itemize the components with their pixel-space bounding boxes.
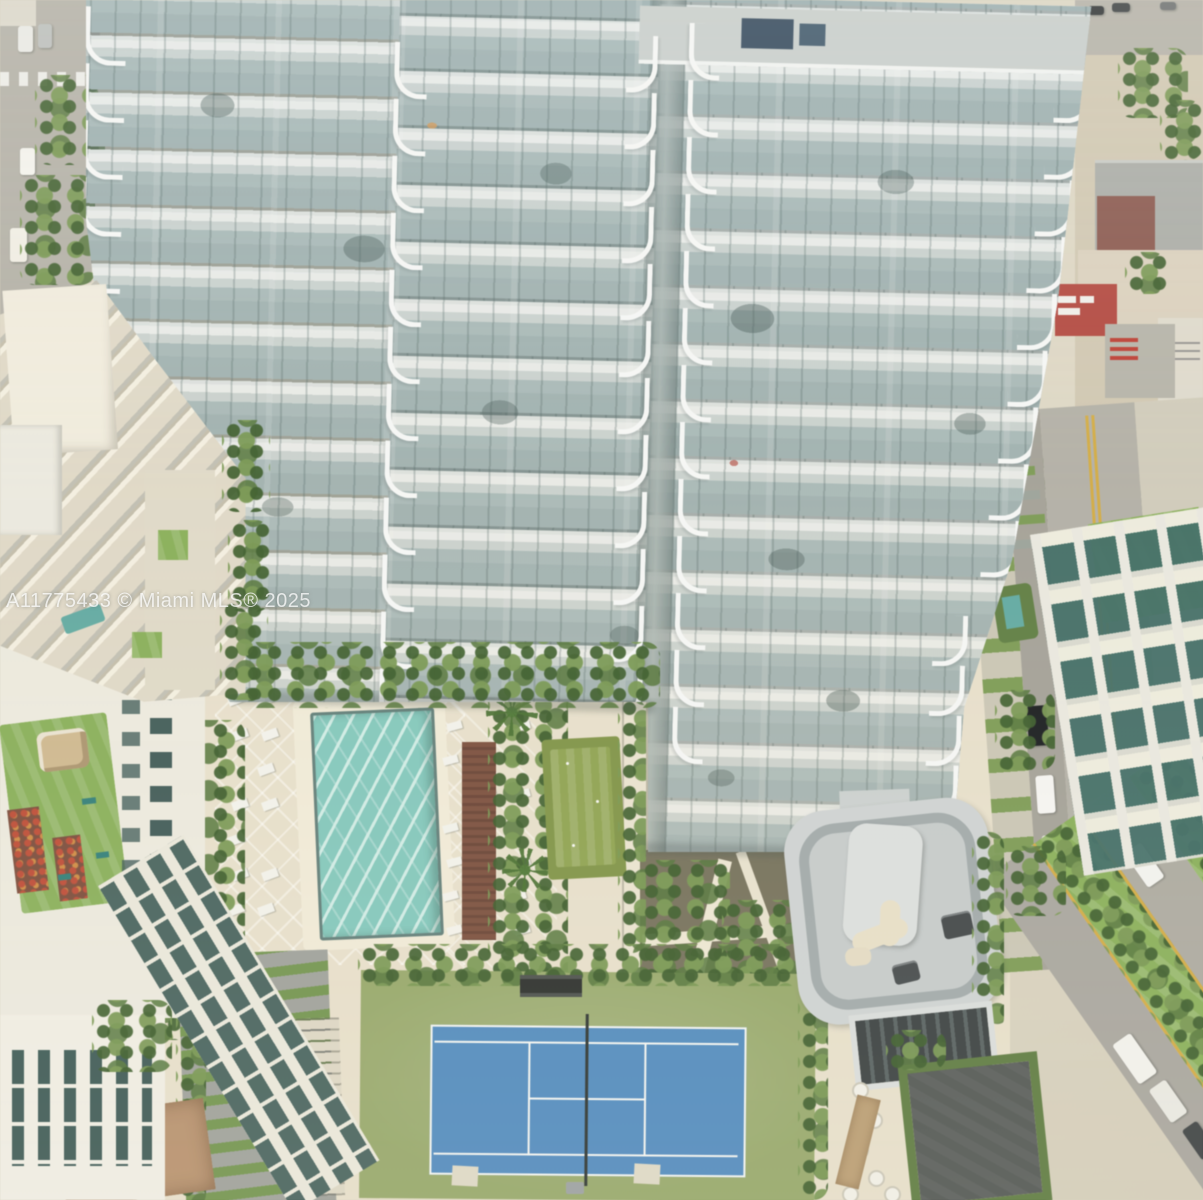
district-trees [1125, 252, 1167, 294]
balcony-edge [82, 120, 124, 180]
lounge-chair [442, 754, 459, 766]
lap-pool [310, 707, 444, 940]
red-house [1097, 196, 1155, 252]
solar-panels [741, 18, 794, 49]
event-lawn [898, 1051, 1053, 1200]
cream-sofa [879, 900, 901, 947]
palm-tree [502, 848, 548, 892]
playground-slide [36, 727, 91, 773]
red-stripe [1110, 347, 1138, 351]
court-bench [520, 975, 582, 997]
car [38, 24, 52, 48]
lounge-chair [261, 798, 279, 812]
lounge-chair [446, 720, 463, 732]
red-stripe [1110, 338, 1138, 342]
solar-panels [799, 24, 826, 47]
net-post-pad [633, 1163, 660, 1184]
gap-trees [222, 420, 270, 512]
red-stripe [1110, 356, 1138, 360]
sign-panel [1058, 308, 1080, 315]
golf-hole [596, 800, 599, 803]
green-roof-patch [132, 632, 162, 658]
lounge-chair [442, 890, 459, 902]
car [1112, 3, 1130, 12]
putting-green-inner [550, 747, 616, 868]
corner-tree [92, 1000, 172, 1072]
corner-building [0, 0, 36, 26]
sign-panel [1058, 296, 1076, 303]
white-slab-roof [0, 425, 62, 535]
lounge-chair [257, 763, 275, 777]
car [1160, 2, 1176, 10]
net-post-pad [451, 1165, 478, 1186]
gap-trees [220, 600, 268, 700]
basketball-hoop [566, 1182, 584, 1194]
green-roof-patch [158, 530, 188, 560]
se-deck-hedge [886, 1030, 946, 1070]
golf-hole [566, 762, 569, 765]
lounge-chair [257, 903, 275, 917]
lounge-chair [442, 822, 459, 834]
car [18, 26, 33, 52]
balcony-edge [83, 63, 125, 123]
aerial-photo: A11775433 © Miami MLS® 2025 [0, 0, 1203, 1200]
umbrella-table [884, 1186, 901, 1200]
tennis-hedge-top [358, 944, 814, 986]
mls-watermark: A11775433 © Miami MLS® 2025 [6, 590, 311, 613]
balcony-edge [84, 6, 126, 66]
pavilion-trees [995, 690, 1055, 770]
tennis-court [429, 1025, 746, 1178]
tower-base-trees [240, 642, 660, 708]
umbrella-table [868, 1170, 885, 1187]
lounge-chair [261, 728, 279, 742]
se-deck-hedge [1006, 846, 1066, 916]
lounge-chair [446, 924, 463, 936]
car [1035, 775, 1056, 814]
golf-hole [572, 844, 575, 847]
street-trees [20, 175, 95, 285]
lounge-chair [446, 856, 463, 868]
district-trees [1160, 100, 1203, 160]
car [20, 148, 35, 175]
lounge-chair [261, 868, 279, 882]
sign-panel [1080, 296, 1094, 303]
striped-building [1105, 324, 1175, 398]
